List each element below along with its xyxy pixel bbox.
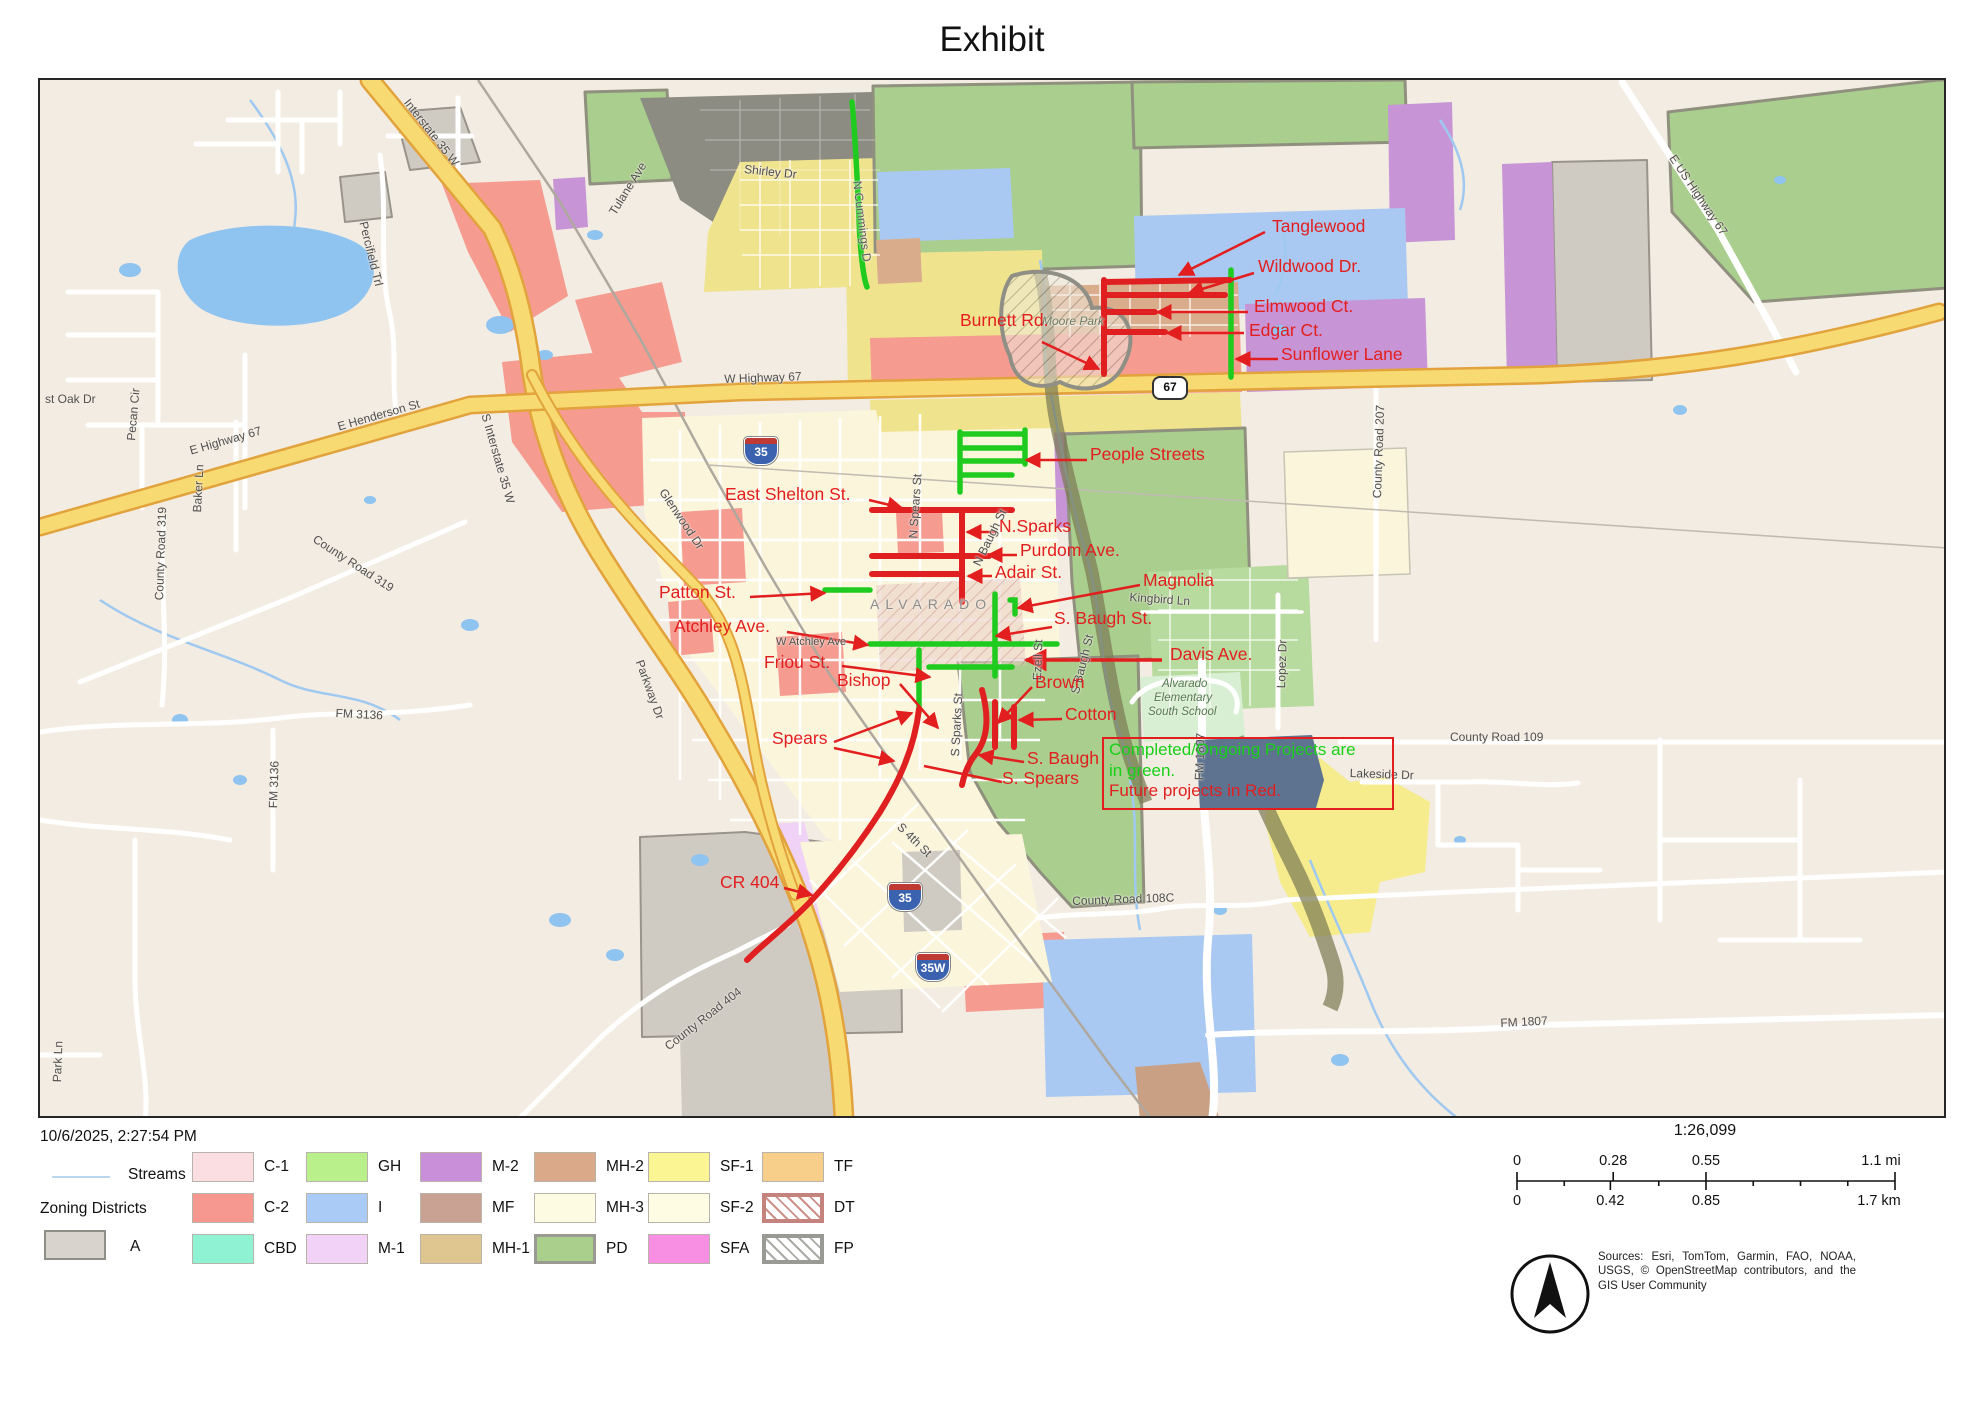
street-label: South School — [1148, 706, 1216, 718]
project-label: S. Baugh — [1027, 748, 1099, 769]
us-route-shield-67: 67 — [1152, 376, 1188, 400]
note-line-2: in green. — [1109, 761, 1387, 782]
zoning-districts-title: Zoning Districts — [40, 1200, 147, 1218]
legend-label-mf: MF — [492, 1199, 514, 1217]
street-label: Park Ln — [50, 1041, 65, 1083]
legend-swatch-sf-2 — [648, 1193, 710, 1223]
scale-km-label: 0 — [1513, 1193, 1521, 1209]
interstate-shield-35W: 35W — [916, 953, 950, 981]
legend-swatch-gh — [306, 1152, 368, 1182]
scale-mi-label: 0.55 — [1692, 1153, 1720, 1169]
page-title: Exhibit — [0, 20, 1984, 60]
street-label: ALVARADO — [870, 596, 992, 612]
legend-label-gh: GH — [378, 1158, 401, 1176]
legend-label-tf: TF — [834, 1158, 853, 1176]
street-label: Lopez Dr — [1274, 639, 1290, 688]
street-label: Elementary — [1154, 692, 1212, 704]
legend-swatch-fp — [762, 1234, 824, 1264]
project-label: Cotton — [1065, 704, 1117, 725]
legend-swatch-i — [306, 1193, 368, 1223]
project-label: Elmwood Ct. — [1254, 296, 1353, 317]
legend-swatch-a — [44, 1230, 106, 1260]
page: Exhibit — [0, 0, 1984, 1403]
legend-label-pd: PD — [606, 1240, 628, 1258]
project-label: Sunflower Lane — [1281, 344, 1403, 365]
streams-swatch — [52, 1176, 110, 1178]
legend-swatch-cbd — [192, 1234, 254, 1264]
project-label: Purdom Ave. — [1020, 540, 1120, 561]
legend-swatch-mh-1 — [420, 1234, 482, 1264]
legend-swatch-sf-1 — [648, 1152, 710, 1182]
map[interactable]: Shirley DrTulane AveN Cummings DPercifie… — [38, 78, 1946, 1118]
legend-label-c-1: C-1 — [264, 1158, 289, 1176]
project-label: Patton St. — [659, 582, 736, 603]
legend-swatch-m-1 — [306, 1234, 368, 1264]
project-label: N.Sparks — [999, 516, 1071, 537]
project-label: Edgar Ct. — [1249, 320, 1323, 341]
project-label: Bishop — [837, 670, 891, 691]
note-line-1: Completed/Ongoing Projects are — [1109, 740, 1387, 761]
interstate-shield-35: 35 — [744, 437, 778, 465]
project-label: Brown — [1035, 672, 1085, 693]
legend-swatch-mf — [420, 1193, 482, 1223]
legend-label-sfa: SFA — [720, 1240, 749, 1258]
legend-label-i: I — [378, 1199, 382, 1217]
credits-text: Sources: Esri, TomTom, Garmin, FAO, NOAA… — [1598, 1250, 1856, 1293]
legend-swatch-tf — [762, 1152, 824, 1182]
street-label: W Atchley Ave — [776, 636, 846, 648]
legend-label-sf-2: SF-2 — [720, 1199, 754, 1217]
scale-km-label: 0.42 — [1596, 1193, 1624, 1209]
project-label: S. Baugh St. — [1054, 608, 1152, 629]
street-label: FM 3136 — [266, 761, 282, 809]
legend-label-c-2: C-2 — [264, 1199, 289, 1217]
street-label: Alvarado — [1162, 678, 1207, 690]
project-label: People Streets — [1090, 444, 1205, 465]
streams-label: Streams — [128, 1166, 186, 1184]
legend-label-mh-3: MH-3 — [606, 1199, 644, 1217]
street-label: County Road 109 — [1450, 730, 1543, 744]
legend-label-m-2: M-2 — [492, 1158, 519, 1176]
legend-swatch-c-2 — [192, 1193, 254, 1223]
legend-swatch-m-2 — [420, 1152, 482, 1182]
legend-swatch-mh-3 — [534, 1193, 596, 1223]
street-label: Moore Park — [1042, 314, 1104, 328]
legend-swatch-mh-2 — [534, 1152, 596, 1182]
map-artwork — [40, 80, 1946, 1118]
scale-bar: 00.280.551.1 mi00.420.851.7 km — [1495, 1145, 1915, 1215]
project-note-box: Completed/Ongoing Projects are in green.… — [1102, 737, 1394, 810]
street-label: FM 1807 — [1500, 1014, 1548, 1030]
legend-label-cbd: CBD — [264, 1240, 297, 1258]
project-label: Adair St. — [995, 562, 1062, 583]
project-label: Burnett Rd. — [960, 310, 1049, 331]
legend-label-mh-2: MH-2 — [606, 1158, 644, 1176]
legend-swatch-dt — [762, 1193, 824, 1223]
project-label: Spears — [772, 728, 827, 749]
project-label: Tanglewood — [1272, 216, 1365, 237]
project-label: Davis Ave. — [1170, 644, 1252, 665]
legend-label-mh-1: MH-1 — [492, 1240, 530, 1258]
project-label: Wildwood Dr. — [1258, 256, 1361, 277]
legend-label-m-1: M-1 — [378, 1240, 405, 1258]
project-label: CR 404 — [720, 872, 779, 893]
street-label: FM 3136 — [335, 706, 383, 722]
scale-mi-label: 0 — [1513, 1153, 1521, 1169]
interstate-shield-35: 35 — [888, 883, 922, 911]
legend-label-sf-1: SF-1 — [720, 1158, 754, 1176]
street-label: st Oak Dr — [45, 392, 96, 406]
street-label: W Highway 67 — [724, 369, 802, 386]
scale-mi-label: 1.1 mi — [1861, 1153, 1901, 1169]
project-label: Atchley Ave. — [674, 616, 770, 637]
legend-label-fp: FP — [834, 1240, 854, 1258]
project-label: Magnolia — [1143, 570, 1214, 591]
legend-label-a: A — [130, 1238, 140, 1256]
north-arrow — [1500, 1242, 1600, 1342]
scale-km-label: 1.7 km — [1857, 1193, 1901, 1209]
project-label: East Shelton St. — [725, 484, 851, 505]
legend-label-dt: DT — [834, 1199, 855, 1217]
project-label: S. Spears — [1002, 768, 1079, 789]
street-label: Baker Ln — [190, 464, 206, 513]
scale-km-label: 0.85 — [1692, 1193, 1720, 1209]
timestamp: 10/6/2025, 2:27:54 PM — [40, 1128, 197, 1146]
legend-swatch-pd — [534, 1234, 596, 1264]
scale-mi-label: 0.28 — [1599, 1153, 1627, 1169]
scale-ratio: 1:26,099 — [1495, 1122, 1915, 1140]
project-label: Friou St. — [764, 652, 830, 673]
legend-swatch-sfa — [648, 1234, 710, 1264]
note-line-3: Future projects in Red. — [1109, 781, 1387, 802]
legend-swatch-c-1 — [192, 1152, 254, 1182]
